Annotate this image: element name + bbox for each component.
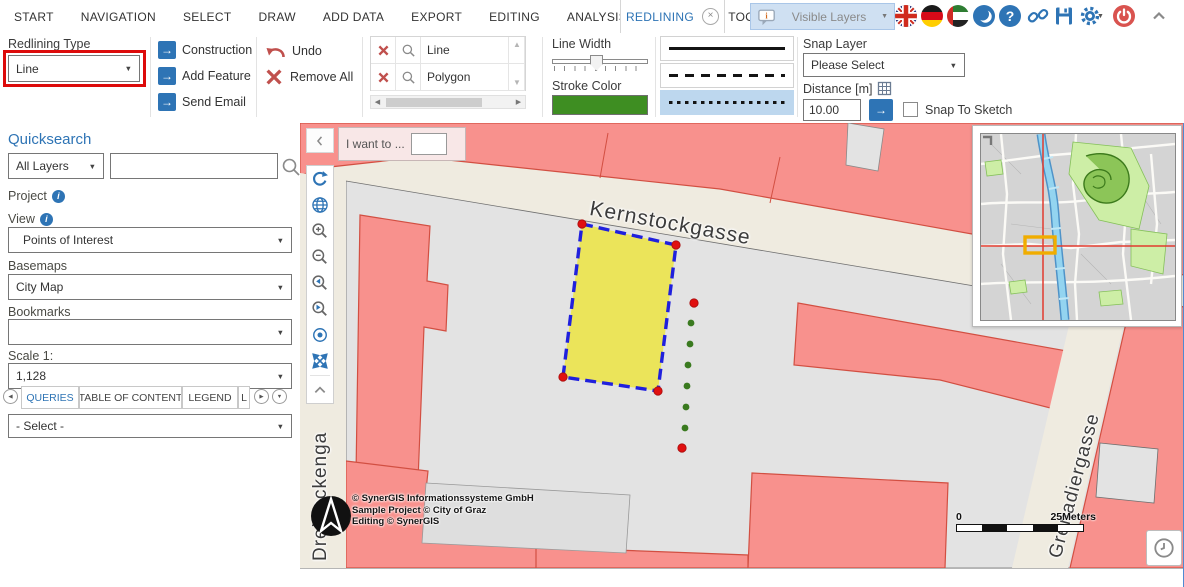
map-copyright: © SynerGIS Informationssysteme GmbH Samp… xyxy=(352,493,534,528)
stroke-color-swatch[interactable] xyxy=(552,95,648,115)
chevron-down-icon: ▼ xyxy=(125,64,139,73)
chevron-up-icon xyxy=(312,383,328,397)
menu-analysis[interactable]: ANALYSIS xyxy=(567,10,627,24)
chevron-down-icon: ▼ xyxy=(89,162,103,171)
line-style-dotted-selected[interactable] xyxy=(660,90,794,115)
list-scroll-arrows: ▲ ▼ xyxy=(508,37,525,90)
clock-icon xyxy=(1153,537,1175,559)
north-arrow xyxy=(310,495,352,537)
menu-export[interactable]: EXPORT xyxy=(411,10,462,24)
line-style-solid[interactable] xyxy=(660,36,794,61)
chevron-down-icon: ▼ xyxy=(277,372,291,381)
next-extent-icon xyxy=(310,299,330,319)
ribbon-toolbar: Redlining Type Line ▼ → Construction → A… xyxy=(0,33,1184,124)
remove-x-icon xyxy=(377,44,390,57)
magnifier-icon xyxy=(401,43,416,58)
basemaps-label: Basemaps xyxy=(8,259,67,273)
map-toolbar xyxy=(306,165,334,404)
scroll-up-icon[interactable]: ▲ xyxy=(513,40,521,49)
chevron-down-icon: ▼ xyxy=(277,236,291,245)
zoom-in-icon xyxy=(310,221,330,241)
tab-legend[interactable]: LEGEND xyxy=(182,386,238,409)
share-link-icon[interactable] xyxy=(1026,4,1050,28)
magnifier-icon xyxy=(401,70,416,85)
tab-queries[interactable]: QUERIES xyxy=(21,386,79,409)
distance-label: Distance [m] xyxy=(803,82,872,96)
info-icon[interactable]: i xyxy=(40,213,53,226)
chevron-down-icon: ▼ xyxy=(277,422,291,431)
previous-extent-button[interactable] xyxy=(307,270,333,296)
snap-to-sketch-label: Snap To Sketch xyxy=(925,103,1012,117)
night-mode-icon[interactable] xyxy=(972,4,996,28)
dotted-line-sample xyxy=(669,101,785,105)
construction-button[interactable]: → Construction xyxy=(158,41,252,59)
collapse-toolbar-icon[interactable] xyxy=(1150,8,1168,24)
german-flag-icon[interactable] xyxy=(920,4,944,28)
remove-x-icon xyxy=(264,67,284,87)
overview-resize-handle[interactable] xyxy=(980,133,994,147)
search-scope-select[interactable]: All Layers ▼ xyxy=(8,153,104,179)
undo-arrow-icon xyxy=(264,41,286,61)
i-want-to-input[interactable] xyxy=(411,133,447,155)
send-email-button[interactable]: → Send Email xyxy=(158,93,246,111)
redline-polygon[interactable] xyxy=(563,224,676,391)
scalebar-bar xyxy=(956,524,1084,532)
tab-redlining[interactable]: REDLINING × xyxy=(620,0,725,33)
next-extent-button[interactable] xyxy=(307,296,333,322)
delete-redline-button[interactable] xyxy=(371,37,396,63)
speech-bubble-icon: i xyxy=(757,8,777,26)
snap-to-sketch-checkbox[interactable] xyxy=(903,102,918,117)
line-width-slider[interactable] xyxy=(552,53,648,77)
refresh-button[interactable] xyxy=(307,166,333,192)
globe-icon xyxy=(310,195,330,215)
zoom-to-redline-button[interactable] xyxy=(396,37,421,63)
view-label: View xyxy=(8,212,35,226)
zoom-out-icon xyxy=(310,247,330,267)
basemap-select[interactable]: City Map ▼ xyxy=(8,274,292,300)
view-select[interactable]: Points of Interest ▼ xyxy=(8,227,292,253)
arrow-right-icon: → xyxy=(158,93,176,111)
apply-distance-button[interactable]: → xyxy=(869,99,893,121)
snap-layer-select[interactable]: Please Select ▼ xyxy=(803,53,965,77)
distance-label-row: Distance [m] xyxy=(803,81,892,96)
map-viewport[interactable]: Kernstockgasse Grenadiergasse Dreihacken… xyxy=(300,123,1184,569)
toolbar-collapse-up-button[interactable] xyxy=(307,377,333,403)
bookmarks-select[interactable]: ▼ xyxy=(8,319,292,345)
line-width-label: Line Width xyxy=(552,37,611,51)
menu-start[interactable]: START xyxy=(14,10,54,24)
help-icon[interactable]: ? xyxy=(998,4,1022,28)
remove-all-button[interactable]: Remove All xyxy=(264,67,353,87)
remove-x-icon xyxy=(377,71,390,84)
tabs-scroll-left-button[interactable]: ◀ xyxy=(3,389,18,404)
delete-redline-button[interactable] xyxy=(371,64,396,90)
tab-table-of-content[interactable]: TABLE OF CONTENT xyxy=(79,386,182,409)
list-item[interactable]: Line xyxy=(371,37,525,64)
save-icon[interactable] xyxy=(1052,4,1076,28)
menu-add-data[interactable]: ADD DATA xyxy=(323,10,384,24)
redlining-type-label: Redlining Type xyxy=(8,37,90,51)
target-icon xyxy=(310,325,330,345)
query-select[interactable]: - Select - ▼ xyxy=(8,414,292,438)
stroke-color-label: Stroke Color xyxy=(552,79,621,93)
visible-layers-label: Visible Layers xyxy=(783,10,875,24)
menu-select[interactable]: SELECT xyxy=(183,10,231,24)
quicksearch-title: Quicksearch xyxy=(8,131,91,148)
settings-caret-icon[interactable]: ▼ xyxy=(1097,13,1104,20)
uae-flag-icon[interactable] xyxy=(946,4,970,28)
sidebar-collapse-button[interactable] xyxy=(306,128,334,153)
bookmarks-label: Bookmarks xyxy=(8,305,71,319)
scale-label: Scale 1: xyxy=(8,349,53,363)
scalebar-end: 25Meters xyxy=(1050,511,1096,523)
dashed-line-sample xyxy=(669,74,785,77)
zoom-out-button[interactable] xyxy=(307,244,333,270)
list-item[interactable]: Polygon xyxy=(371,64,525,91)
scroll-left-icon[interactable]: ◀ xyxy=(371,98,384,106)
chevron-down-icon: ▼ xyxy=(277,328,291,337)
time-slider-button[interactable] xyxy=(1146,530,1182,566)
overview-globe-button[interactable] xyxy=(307,192,333,218)
center-map-button[interactable] xyxy=(307,322,333,348)
arrow-right-icon: → xyxy=(158,41,176,59)
scalebar: 0 25Meters xyxy=(956,511,1096,532)
tab-truncated[interactable]: L xyxy=(238,386,250,409)
refresh-icon xyxy=(310,169,330,189)
close-tab-icon[interactable]: × xyxy=(702,8,719,25)
menu-editing[interactable]: EDITING xyxy=(489,10,540,24)
search-icon[interactable] xyxy=(281,157,301,177)
chevron-down-icon: ▼ xyxy=(881,13,888,20)
chevron-down-icon: ▼ xyxy=(950,61,964,70)
power-icon[interactable] xyxy=(1112,4,1136,28)
i-want-to-label: I want to ... xyxy=(346,137,405,151)
measure-grid-icon[interactable] xyxy=(877,81,892,96)
zoom-in-button[interactable] xyxy=(307,218,333,244)
arrow-right-icon: → xyxy=(158,67,176,85)
solid-line-sample xyxy=(669,47,785,50)
full-extent-button[interactable] xyxy=(307,348,333,374)
zoom-to-redline-button[interactable] xyxy=(396,64,421,90)
redlining-type-select[interactable]: Line ▼ xyxy=(8,55,140,82)
chevron-left-icon xyxy=(313,134,327,148)
project-label: Project xyxy=(8,189,47,203)
redline-layer-list: Line Polygon ▲ ▼ xyxy=(370,36,526,91)
menu-draw[interactable]: DRAW xyxy=(258,10,295,24)
scroll-down-icon[interactable]: ▼ xyxy=(513,78,521,87)
scalebar-start: 0 xyxy=(956,511,962,523)
menu-navigation[interactable]: NAVIGATION xyxy=(81,10,156,24)
project-label-row: Project i xyxy=(8,189,65,203)
horizontal-scrollbar[interactable]: ◀ ▶ xyxy=(370,95,526,109)
distance-input[interactable] xyxy=(803,99,861,121)
overview-map-panel[interactable] xyxy=(972,125,1182,327)
tabs-scroll-right-button[interactable]: ▶ xyxy=(254,389,269,404)
visible-layers-button[interactable]: i Visible Layers ▼ xyxy=(750,3,895,30)
svg-text:?: ? xyxy=(1006,8,1015,24)
uk-flag-icon[interactable] xyxy=(894,4,918,28)
view-label-row: View i xyxy=(8,212,53,226)
full-extent-icon xyxy=(310,351,330,371)
undo-button[interactable]: Undo xyxy=(264,41,322,61)
top-menu-bar: START NAVIGATION SELECT DRAW ADD DATA EX… xyxy=(0,0,1184,34)
scrollbar-thumb[interactable] xyxy=(386,98,482,107)
quicksearch-input[interactable] xyxy=(110,153,278,179)
add-feature-button[interactable]: → Add Feature xyxy=(158,67,251,85)
application-window: START NAVIGATION SELECT DRAW ADD DATA EX… xyxy=(0,0,1184,587)
left-sidebar: Quicksearch All Layers ▼ Project i View … xyxy=(0,123,300,587)
tab-redlining-label: REDLINING xyxy=(626,10,694,24)
chevron-down-icon: ▼ xyxy=(277,283,291,292)
snap-layer-label: Snap Layer xyxy=(803,37,867,51)
previous-extent-icon xyxy=(310,273,330,293)
tabs-menu-button[interactable]: ▼ xyxy=(272,389,287,404)
line-style-dashed[interactable] xyxy=(660,63,794,88)
i-want-to-widget[interactable]: I want to ... xyxy=(338,127,466,161)
overview-map-image[interactable] xyxy=(980,133,1176,321)
scroll-right-icon[interactable]: ▶ xyxy=(512,98,525,106)
info-icon[interactable]: i xyxy=(52,190,65,203)
